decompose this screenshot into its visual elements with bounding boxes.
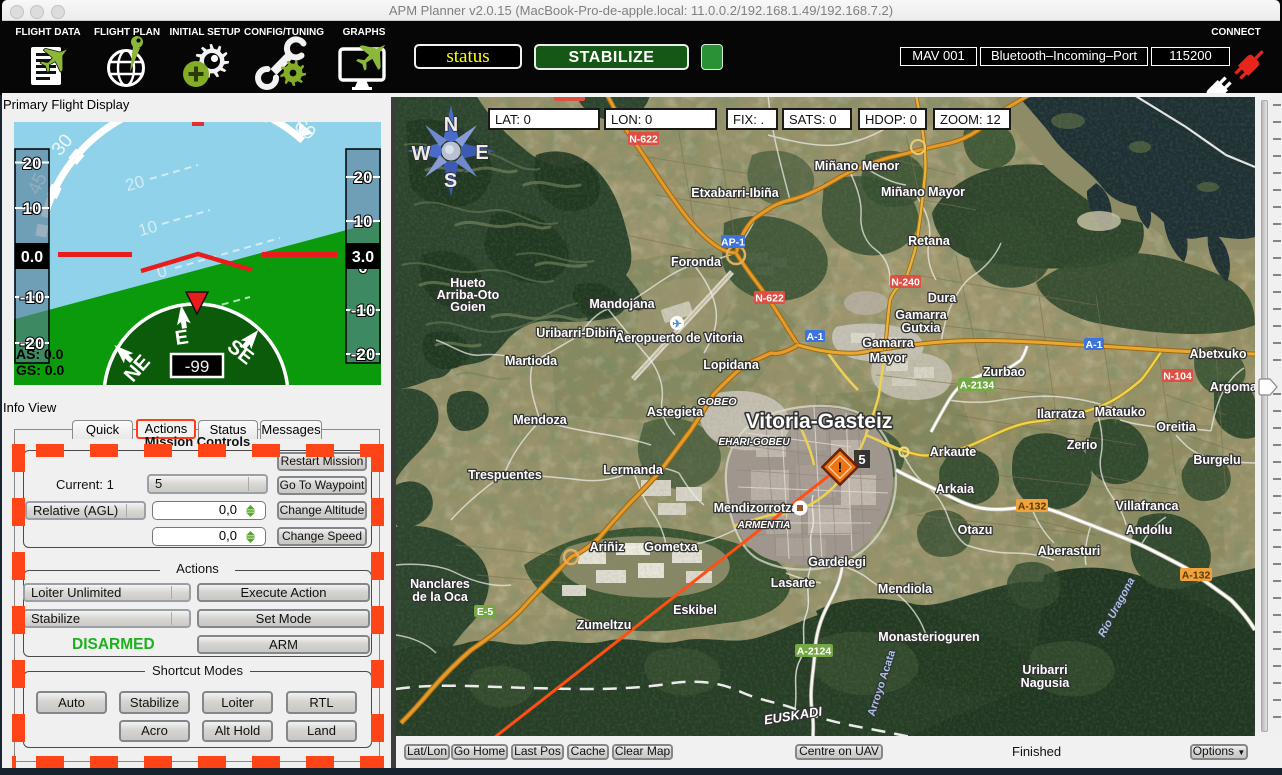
svg-text:A-1: A-1 <box>1086 339 1103 351</box>
svg-text:de la Oca: de la Oca <box>412 590 469 604</box>
svg-text:-10: -10 <box>351 301 376 320</box>
svg-text:A-2124: A-2124 <box>797 646 832 658</box>
svg-text:Gometxa: Gometxa <box>644 540 699 554</box>
svg-text:Vitoria-Gasteiz: Vitoria-Gasteiz <box>746 410 893 433</box>
svg-text:FIX: .: FIX: . <box>733 112 764 127</box>
svg-text:GS: 0.0: GS: 0.0 <box>16 362 64 378</box>
svg-text:Zurbao: Zurbao <box>983 365 1026 379</box>
svg-text:10: 10 <box>354 212 373 231</box>
svg-text:A-2134: A-2134 <box>960 380 995 392</box>
svg-text:Abetxuko: Abetxuko <box>1190 347 1247 361</box>
svg-text:Mendoza: Mendoza <box>513 413 568 427</box>
svg-text:LAT: 0: LAT: 0 <box>495 112 531 127</box>
svg-text:HDOP: 0: HDOP: 0 <box>865 112 917 127</box>
svg-text:LON: 0: LON: 0 <box>611 112 652 127</box>
svg-text:SATS: 0: SATS: 0 <box>789 112 836 127</box>
svg-text:20: 20 <box>354 168 373 187</box>
svg-text:Arkaia: Arkaia <box>936 482 975 496</box>
svg-text:N-622: N-622 <box>629 134 658 146</box>
svg-text:Arkaute: Arkaute <box>930 445 977 459</box>
svg-text:Zumeltzu: Zumeltzu <box>577 618 632 632</box>
svg-text:ZOOM: 12: ZOOM: 12 <box>940 112 1001 127</box>
svg-text:E-5: E-5 <box>477 606 494 618</box>
svg-text:Aeropuerto de Vitoria: Aeropuerto de Vitoria <box>615 331 744 345</box>
svg-text:Eskibel: Eskibel <box>673 603 717 617</box>
svg-text:Argomaniz: Argomaniz <box>1210 380 1255 394</box>
svg-text:Mendizorrotza: Mendizorrotza <box>714 501 800 515</box>
svg-text:Ariñiz: Ariñiz <box>590 540 625 554</box>
svg-text:Zerio: Zerio <box>1067 438 1098 452</box>
svg-text:N: N <box>444 114 458 136</box>
svg-text:Retana: Retana <box>908 234 951 248</box>
svg-text:GOBEO: GOBEO <box>697 396 736 408</box>
svg-text:Gutxia: Gutxia <box>902 321 942 335</box>
svg-text:Lermanda: Lermanda <box>603 463 664 477</box>
svg-text:Ilarratza: Ilarratza <box>1037 407 1086 421</box>
svg-text:Otazu: Otazu <box>958 523 993 537</box>
svg-text:Trespuentes: Trespuentes <box>468 468 542 482</box>
svg-text:Villafranca: Villafranca <box>1115 499 1179 513</box>
svg-text:Mendiola: Mendiola <box>878 582 933 596</box>
svg-text:-10: -10 <box>20 288 45 307</box>
svg-text:Foronda: Foronda <box>671 255 722 269</box>
svg-text:AS: 0.0: AS: 0.0 <box>16 346 64 362</box>
svg-text:S: S <box>444 170 457 192</box>
svg-text:Goien: Goien <box>450 300 485 314</box>
svg-text:N-622: N-622 <box>755 293 784 305</box>
svg-text:Nanclares: Nanclares <box>410 577 470 591</box>
svg-text:Astegieta: Astegieta <box>647 405 704 419</box>
svg-text:5: 5 <box>858 452 865 467</box>
svg-text:Uribarri: Uribarri <box>1022 663 1067 677</box>
svg-text:AP-1: AP-1 <box>721 237 745 249</box>
svg-text:Gardelegi: Gardelegi <box>808 555 866 569</box>
svg-text:Gamarra: Gamarra <box>895 308 947 322</box>
svg-text:Matauko: Matauko <box>1095 405 1146 419</box>
svg-text:Lopidana: Lopidana <box>703 358 760 372</box>
svg-text:ARMENTIA: ARMENTIA <box>737 520 791 531</box>
svg-text:20: 20 <box>23 154 42 173</box>
svg-text:Lasarte: Lasarte <box>771 576 816 590</box>
svg-text:A-132: A-132 <box>1182 570 1211 582</box>
svg-text:Etxabarri-Ibiña: Etxabarri-Ibiña <box>691 186 780 200</box>
svg-text:Gamarra: Gamarra <box>862 336 914 350</box>
svg-text:0.0: 0.0 <box>21 249 43 266</box>
svg-text:Nagusia: Nagusia <box>1021 676 1071 690</box>
svg-text:Mayor: Mayor <box>870 351 907 365</box>
svg-text:EHARI-GOBEU: EHARI-GOBEU <box>718 437 790 448</box>
svg-text:Miñano Mayor: Miñano Mayor <box>881 185 965 199</box>
svg-text:Monasterioguren: Monasterioguren <box>878 630 979 644</box>
svg-text:N-104: N-104 <box>1163 371 1192 383</box>
svg-text:Martioda: Martioda <box>505 354 558 368</box>
svg-text:Mandojana: Mandojana <box>589 297 655 311</box>
svg-text:E: E <box>475 142 488 164</box>
svg-text:-99: -99 <box>185 357 210 376</box>
svg-text:10: 10 <box>23 199 42 218</box>
svg-text:Oreitia: Oreitia <box>1156 420 1197 434</box>
svg-text:N-240: N-240 <box>891 277 920 289</box>
svg-text:A-1: A-1 <box>807 331 824 343</box>
svg-text:!: ! <box>838 459 843 475</box>
svg-text:Aberasturi: Aberasturi <box>1038 544 1101 558</box>
svg-text:✈: ✈ <box>672 319 681 331</box>
svg-text:Miñano Menor: Miñano Menor <box>815 159 900 173</box>
svg-text:Andollu: Andollu <box>1126 523 1173 537</box>
svg-text:W: W <box>412 143 431 165</box>
svg-text:Burgelu: Burgelu <box>1193 453 1240 467</box>
svg-text:3.0: 3.0 <box>352 249 374 266</box>
svg-text:-20: -20 <box>351 345 376 364</box>
svg-text:Dura: Dura <box>928 291 958 305</box>
svg-text:Uribarri-Dibiña: Uribarri-Dibiña <box>536 326 625 340</box>
svg-text:A-132: A-132 <box>1018 501 1047 513</box>
